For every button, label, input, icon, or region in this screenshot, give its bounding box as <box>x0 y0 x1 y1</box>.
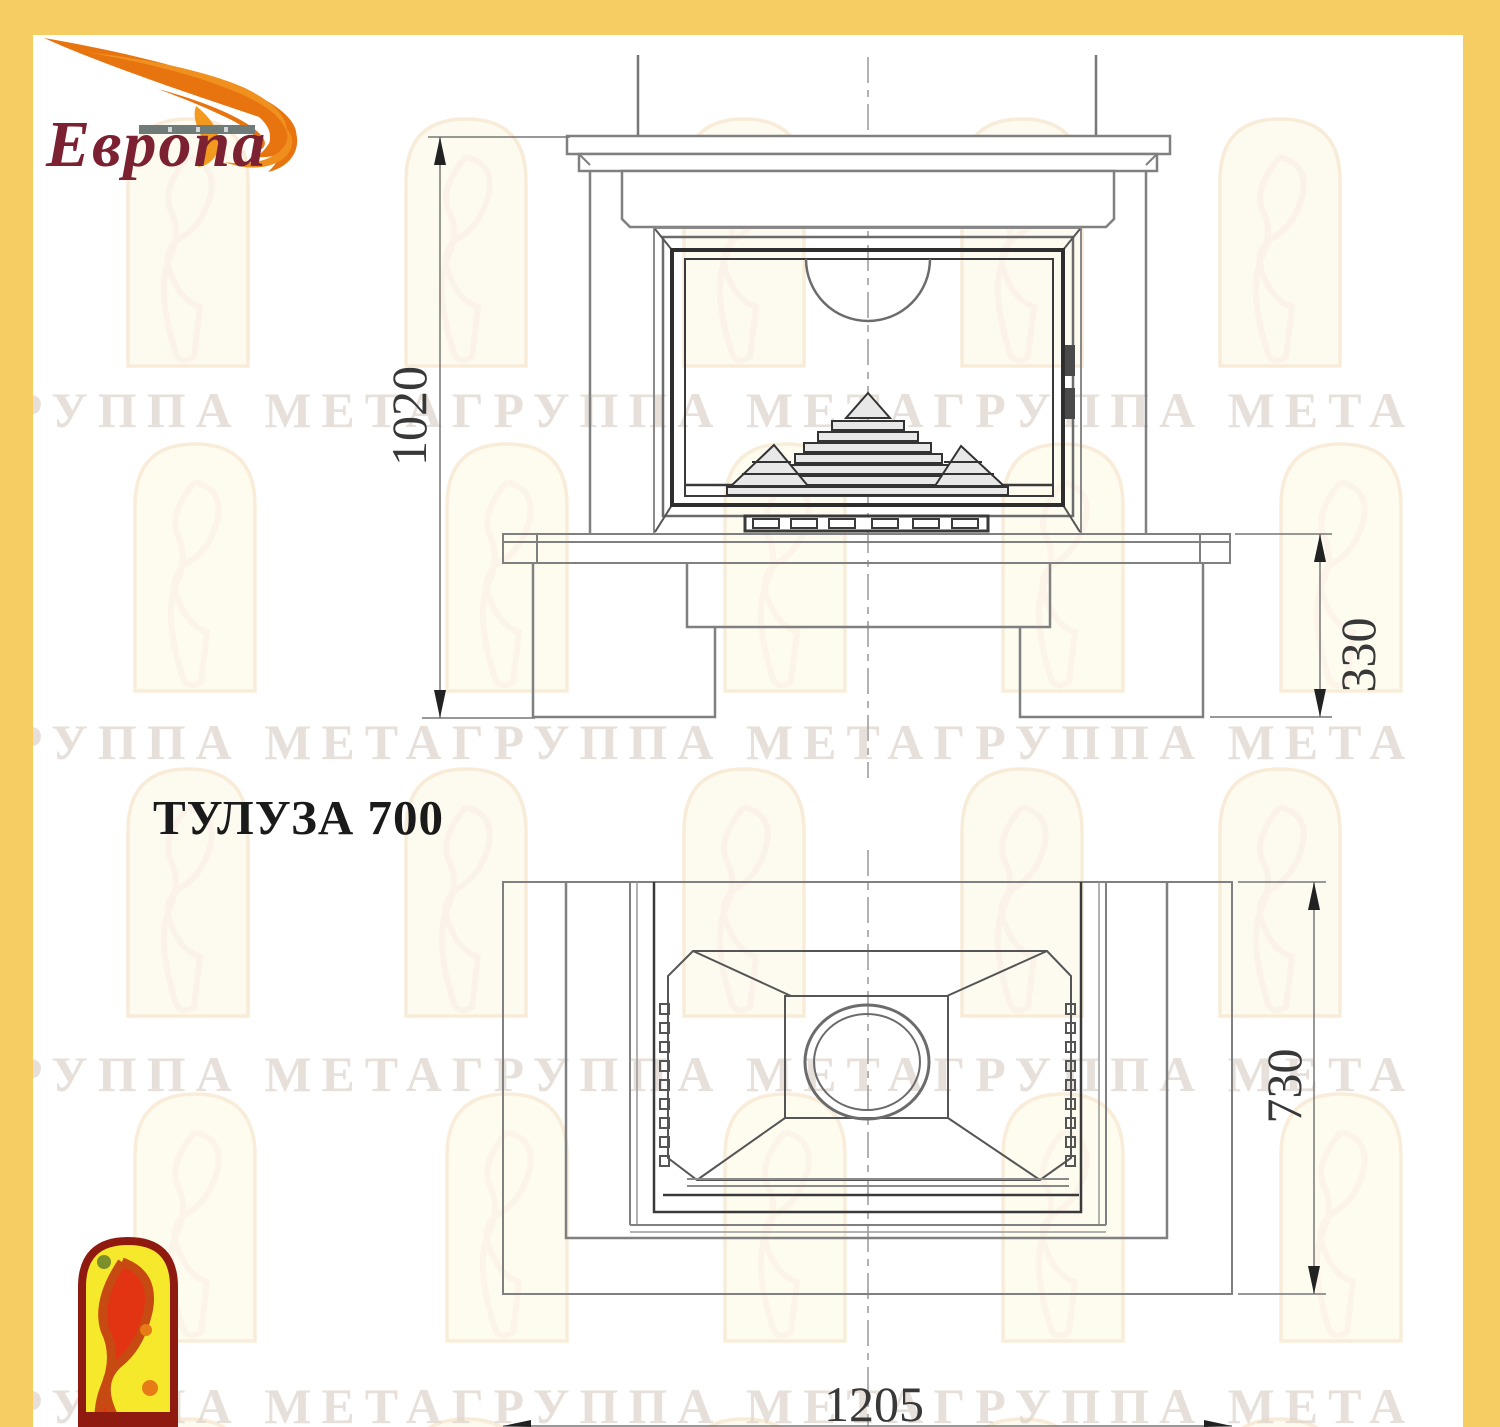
svg-text:730: 730 <box>1256 1049 1312 1124</box>
svg-text:1205: 1205 <box>824 1376 924 1427</box>
svg-text:ТУЛУЗА 700: ТУЛУЗА 700 <box>153 790 444 845</box>
svg-text:330: 330 <box>1330 618 1386 693</box>
svg-text:1020: 1020 <box>381 366 437 466</box>
svg-text:Европа: Европа <box>45 108 267 181</box>
